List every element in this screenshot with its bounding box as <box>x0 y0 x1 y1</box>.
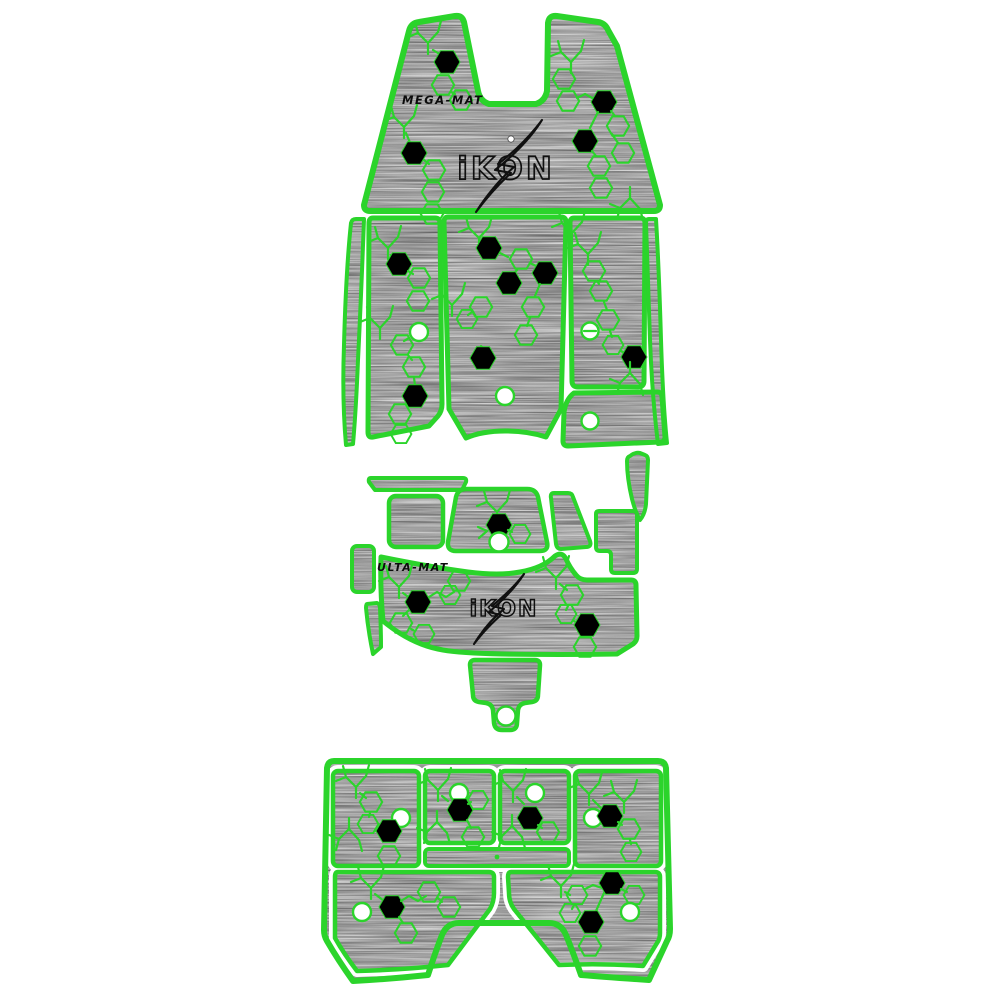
strip-dot <box>495 855 500 860</box>
mega-mat-label: MEGA-MAT <box>402 93 484 107</box>
small-dot <box>508 136 514 142</box>
boat-mat-kit-graphic: MEGA-MAT iKON <box>0 0 1000 1000</box>
cutout-hole <box>410 323 428 341</box>
product-image: MEGA-MAT iKON <box>0 0 1000 1000</box>
